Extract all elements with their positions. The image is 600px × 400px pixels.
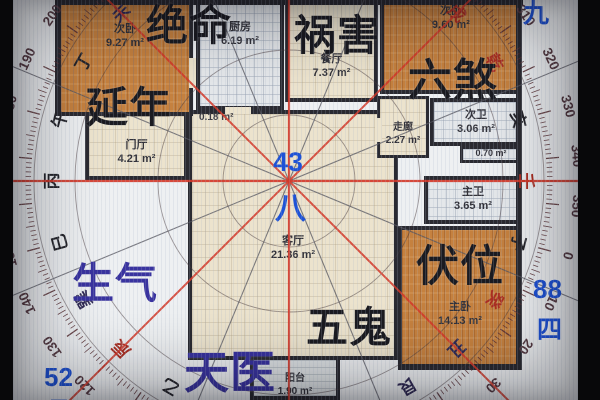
svg-text:320: 320 — [539, 45, 562, 72]
sector-fuwei: 伏位 — [416, 232, 504, 294]
room-label: 主卧14.13 m² — [402, 300, 518, 329]
sector-liusha: 六煞 — [408, 44, 498, 108]
sector-huohai: 祸害 — [294, 2, 380, 63]
star-reading-top-right-clipped: 九 — [523, 0, 549, 30]
svg-text:乙: 乙 — [158, 374, 182, 399]
room-label: 0.70 m² — [463, 148, 519, 160]
room-nook: 0.70 m² — [460, 146, 522, 163]
room-label: 次卫3.06 m² — [434, 108, 518, 137]
svg-text:辰: 辰 — [108, 335, 134, 361]
star-reading-right: 四 — [537, 310, 562, 346]
room-label: 走廊2.27 m² — [380, 121, 426, 147]
room-label: 门厅4.21 m² — [89, 138, 184, 167]
degree-reading-center: 43 — [273, 147, 303, 178]
star-reading-center: 八 — [275, 183, 306, 228]
degree-reading-right: 88 — [533, 274, 562, 305]
room-label: 次卧9.60 m² — [384, 4, 518, 33]
sector-wugui: 五鬼 — [306, 294, 392, 355]
wall — [516, 0, 522, 370]
room-label: 客厅21.36 m² — [192, 234, 394, 263]
degree-reading-left: 52 — [44, 362, 73, 393]
sector-yannian: 延年 — [86, 74, 172, 135]
svg-text:330: 330 — [558, 93, 578, 119]
luopan-floorplan-photo: { "rooms": [ {"name":"次卧","area":"9.27 m… — [0, 0, 600, 400]
wall — [55, 0, 523, 5]
door-gap — [189, 58, 196, 88]
svg-text:130: 130 — [40, 333, 65, 360]
room-bath-master: 主卫3.65 m² — [424, 176, 522, 224]
svg-text:30: 30 — [483, 375, 504, 396]
svg-text:0: 0 — [560, 250, 576, 261]
sector-shengqi: 生气 — [72, 250, 158, 311]
photo-area: 客厅21.36 m² 次卧9.27 m² 厨房6.19 m² 餐厅7.37 m²… — [13, 0, 578, 400]
wall — [55, 0, 60, 116]
star-reading-left-clipped: 五 — [49, 392, 69, 400]
sector-jueming: 绝命 — [146, 0, 232, 53]
svg-text:丙: 丙 — [43, 173, 62, 190]
svg-text:120: 120 — [71, 372, 98, 399]
svg-text:150: 150 — [13, 243, 20, 269]
svg-text:180: 180 — [13, 93, 20, 119]
svg-text:340: 340 — [568, 144, 578, 168]
svg-text:巳: 巳 — [49, 232, 72, 253]
svg-text:艮: 艮 — [395, 374, 420, 399]
closet-area-label: 0.18 m² — [199, 112, 233, 123]
svg-text:350: 350 — [568, 194, 578, 218]
door-gap — [375, 118, 382, 142]
wall — [398, 364, 522, 370]
room-label: 主卫3.65 m² — [428, 185, 518, 214]
sector-tianyi: 天医 — [184, 336, 276, 400]
svg-text:140: 140 — [16, 290, 39, 317]
svg-text:190: 190 — [16, 45, 39, 72]
